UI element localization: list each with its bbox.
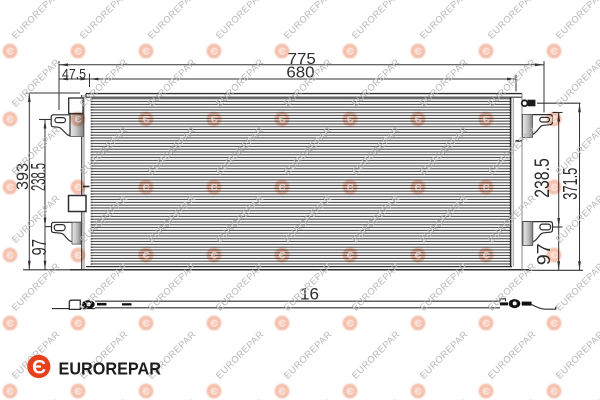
svg-text:Є: Є — [7, 386, 14, 397]
svg-text:Є: Є — [211, 114, 218, 125]
svg-text:Є: Є — [347, 114, 354, 125]
svg-text:Є: Є — [483, 318, 490, 329]
svg-text:Є: Є — [347, 46, 354, 57]
svg-text:Є: Є — [551, 114, 558, 125]
svg-text:Є: Є — [415, 386, 422, 397]
svg-text:Є: Є — [75, 114, 82, 125]
svg-text:Є: Є — [551, 250, 558, 261]
svg-text:Є: Є — [7, 250, 14, 261]
svg-text:Є: Є — [347, 318, 354, 329]
svg-text:Є: Є — [143, 250, 150, 261]
svg-text:Є: Є — [347, 386, 354, 397]
svg-text:47.5: 47.5 — [62, 67, 86, 82]
svg-text:Є: Є — [7, 114, 14, 125]
svg-text:Є: Є — [551, 46, 558, 57]
svg-text:97: 97 — [29, 239, 51, 256]
svg-text:Є: Є — [143, 182, 150, 193]
svg-text:Є: Є — [279, 114, 286, 125]
svg-text:Є: Є — [347, 250, 354, 261]
svg-text:Є: Є — [279, 318, 286, 329]
svg-text:Є: Є — [143, 318, 150, 329]
svg-text:Є: Є — [7, 182, 14, 193]
svg-text:Є: Є — [347, 182, 354, 193]
svg-text:Є: Є — [483, 114, 490, 125]
svg-text:Є: Є — [143, 114, 150, 125]
svg-text:Є: Є — [483, 182, 490, 193]
svg-text:Є: Є — [551, 386, 558, 397]
svg-text:Є: Є — [7, 318, 14, 329]
svg-text:Є: Є — [483, 386, 490, 397]
svg-text:Є: Є — [143, 386, 150, 397]
svg-text:Є: Є — [211, 46, 218, 57]
svg-text:Є: Є — [415, 250, 422, 261]
svg-text:Є: Є — [279, 182, 286, 193]
svg-text:Є: Є — [483, 250, 490, 261]
svg-text:Є: Є — [279, 46, 286, 57]
svg-text:Є: Є — [551, 182, 558, 193]
svg-text:Є: Є — [75, 250, 82, 261]
svg-text:Є: Є — [483, 46, 490, 57]
svg-text:Є: Є — [415, 318, 422, 329]
svg-text:Є: Є — [75, 318, 82, 329]
svg-text:Є: Є — [75, 386, 82, 397]
svg-text:Є: Є — [211, 250, 218, 261]
svg-text:Є: Є — [415, 182, 422, 193]
svg-text:Є: Є — [75, 46, 82, 57]
svg-text:Є: Є — [279, 386, 286, 397]
svg-text:Є: Є — [32, 357, 46, 379]
svg-text:Є: Є — [211, 318, 218, 329]
svg-text:Є: Є — [279, 250, 286, 261]
svg-text:Є: Є — [7, 46, 14, 57]
svg-text:238.5: 238.5 — [27, 163, 50, 191]
svg-text:Є: Є — [211, 182, 218, 193]
svg-text:Є: Є — [415, 46, 422, 57]
svg-text:Є: Є — [551, 318, 558, 329]
svg-text:Є: Є — [75, 182, 82, 193]
svg-text:Є: Є — [143, 46, 150, 57]
svg-text:Є: Є — [415, 114, 422, 125]
svg-text:EUROREPAR: EUROREPAR — [59, 358, 162, 378]
svg-text:Є: Є — [211, 386, 218, 397]
